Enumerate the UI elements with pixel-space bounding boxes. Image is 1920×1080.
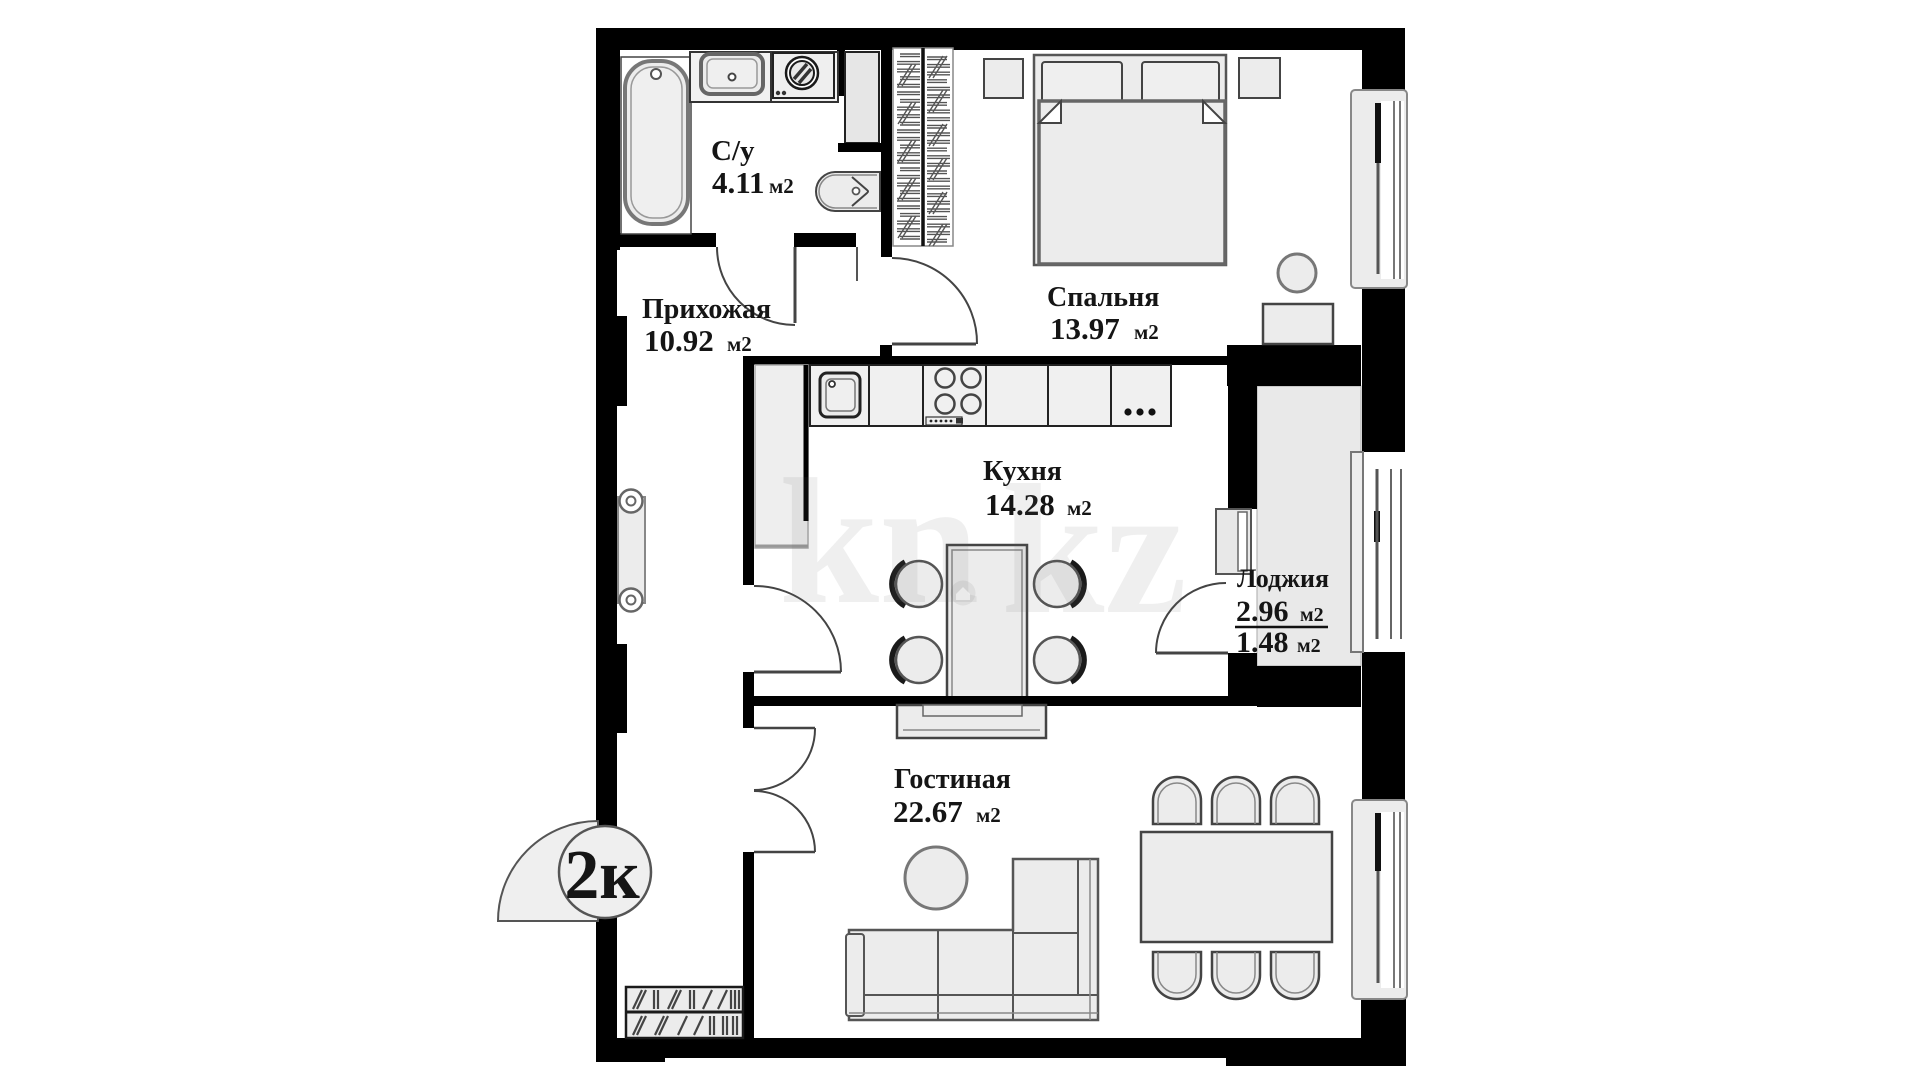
svg-text:Лоджия: Лоджия — [1237, 564, 1329, 593]
svg-text:kn: kn — [779, 442, 979, 641]
svg-text:kz: kz — [1001, 447, 1187, 653]
svg-text:10.92: 10.92 — [644, 323, 714, 358]
svg-text:м2: м2 — [1300, 604, 1324, 626]
svg-text:м2: м2 — [976, 803, 1001, 827]
svg-text:Спальня: Спальня — [1047, 282, 1159, 313]
svg-text:Прихожая: Прихожая — [642, 294, 771, 325]
svg-text:Гостиная: Гостиная — [894, 764, 1011, 795]
svg-text:м2: м2 — [1134, 320, 1159, 344]
svg-text:2.96: 2.96 — [1236, 595, 1289, 628]
svg-text:2к: 2к — [564, 837, 640, 914]
svg-text:м2: м2 — [727, 332, 752, 356]
svg-text:13.97: 13.97 — [1050, 311, 1120, 346]
svg-text:м2: м2 — [1297, 635, 1321, 657]
svg-text:4.11: 4.11 — [712, 165, 765, 200]
svg-text:1.48: 1.48 — [1236, 626, 1289, 659]
svg-text:22.67: 22.67 — [893, 794, 963, 829]
svg-text:С/у: С/у — [711, 135, 755, 167]
svg-text:м2: м2 — [769, 174, 794, 198]
